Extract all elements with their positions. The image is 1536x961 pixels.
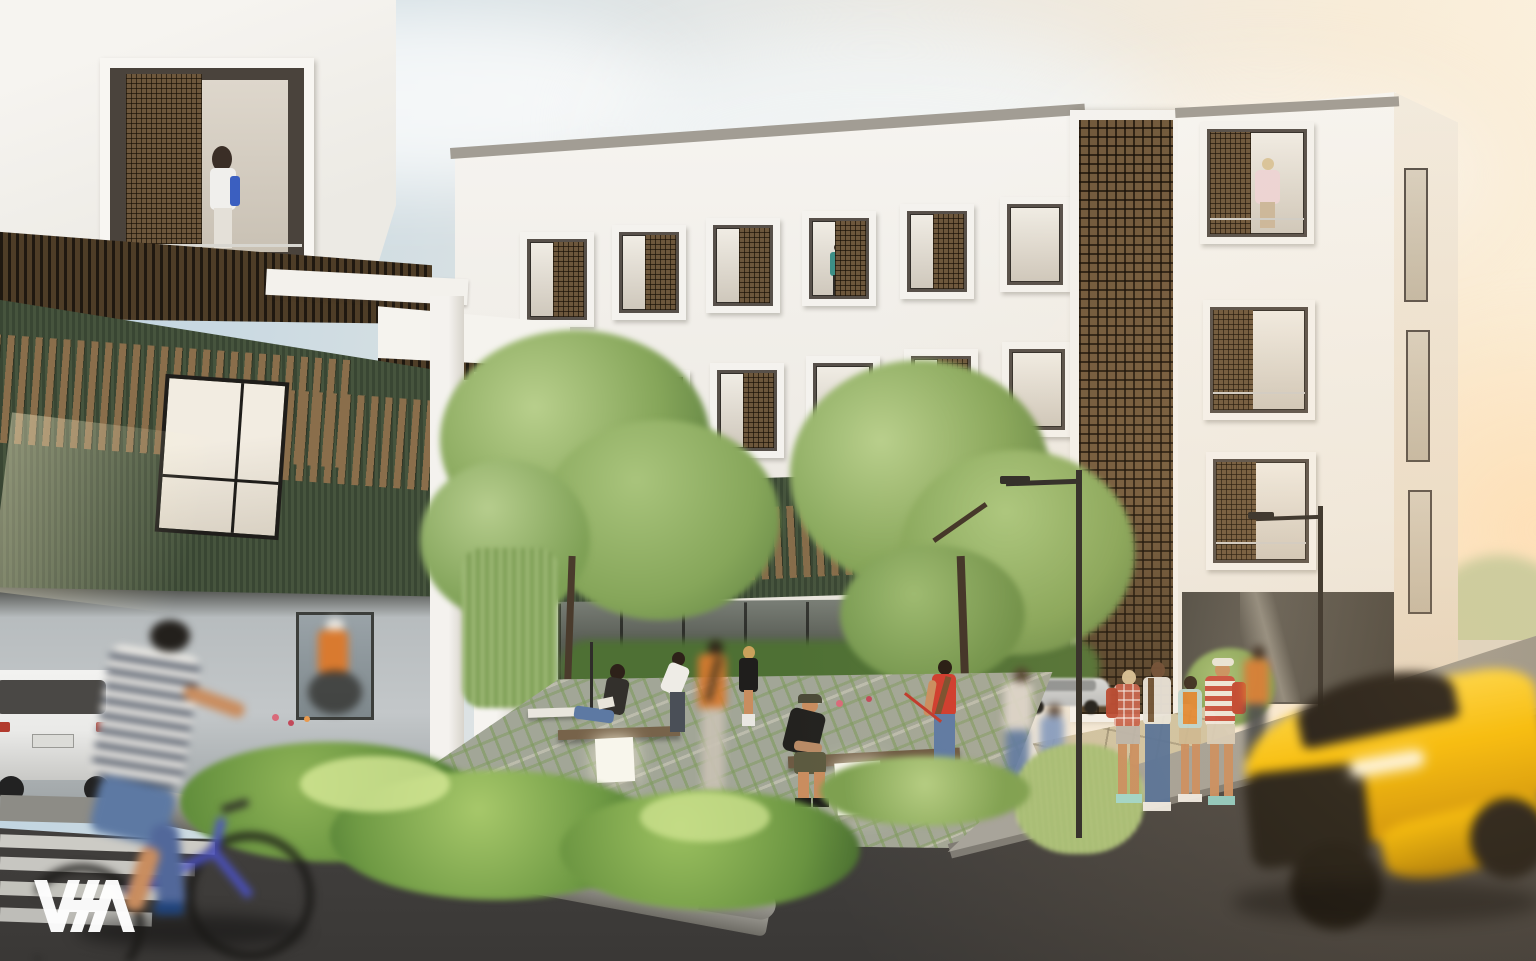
balcony-woman-pants <box>1260 202 1275 228</box>
legs <box>702 708 724 796</box>
cap <box>150 620 190 652</box>
balcony-rail <box>1210 218 1304 220</box>
balcony-girl-bag <box>230 176 240 206</box>
balcony-girl-pants <box>214 208 232 248</box>
shorts <box>1116 726 1140 744</box>
striped-shirt <box>1205 676 1235 726</box>
cap <box>1212 658 1234 666</box>
leg <box>1192 744 1200 796</box>
suv-taillight <box>0 722 10 732</box>
window-glass <box>1010 207 1060 282</box>
woman-sitting-reading <box>572 660 642 748</box>
backpack <box>1106 688 1118 718</box>
side-narrow-window <box>1406 330 1430 462</box>
car-shadow <box>1232 880 1536 924</box>
window-lattice-screen <box>743 373 774 448</box>
flower <box>836 700 843 707</box>
lamp-pole <box>1076 470 1082 838</box>
window-with-person <box>802 211 876 306</box>
window <box>900 204 974 299</box>
child-black-dress <box>734 644 764 728</box>
sneakers <box>1208 796 1235 805</box>
grass-edge <box>820 756 1030 826</box>
vest <box>1183 692 1197 724</box>
head <box>1151 662 1165 678</box>
shorts <box>1179 728 1201 744</box>
planting-highlight <box>640 792 770 842</box>
boots <box>742 714 755 726</box>
dress <box>739 658 758 692</box>
lamp-head <box>1000 476 1030 484</box>
lamp-head <box>1248 512 1274 519</box>
shoe <box>154 902 184 915</box>
window-lattice-screen <box>553 242 584 317</box>
shorts <box>1207 724 1235 744</box>
cap <box>798 694 822 703</box>
jeans <box>1145 724 1170 804</box>
balcony-opening <box>100 58 314 266</box>
yellow-sports-car <box>1232 640 1536 940</box>
balcony-woman-head <box>1262 158 1274 170</box>
backpacker-group <box>1100 660 1250 830</box>
window-lattice-screen <box>835 221 866 296</box>
sneakers <box>1178 794 1202 802</box>
flower <box>866 696 872 702</box>
side-narrow-window <box>1408 490 1432 614</box>
window-lattice-screen <box>739 228 770 303</box>
window-lattice-screen <box>645 235 676 310</box>
balcony-rail <box>1213 392 1305 394</box>
leg <box>1210 744 1219 798</box>
head <box>1122 670 1136 685</box>
head <box>1184 676 1197 690</box>
strap <box>1148 678 1154 722</box>
legs <box>670 692 685 732</box>
architectural-rendering <box>0 0 1536 961</box>
leg <box>1181 744 1189 796</box>
vsa-logo <box>32 872 150 940</box>
leg <box>1118 744 1127 796</box>
window-lattice-screen <box>1213 310 1253 410</box>
corner-window <box>1203 300 1315 420</box>
window <box>520 232 594 327</box>
street-lamp <box>1000 470 1110 840</box>
window <box>706 218 780 313</box>
window <box>612 225 686 320</box>
window <box>1000 197 1070 292</box>
balcony-lattice-panel <box>126 74 202 254</box>
side-narrow-window <box>1404 168 1428 302</box>
shorts <box>794 752 826 774</box>
head <box>938 660 952 675</box>
bamboo-screen <box>462 548 558 708</box>
window-lattice-screen <box>933 214 964 289</box>
corner-window-with-person <box>1200 122 1314 244</box>
balcony-woman-top <box>1255 170 1280 204</box>
sneakers <box>1143 802 1171 811</box>
